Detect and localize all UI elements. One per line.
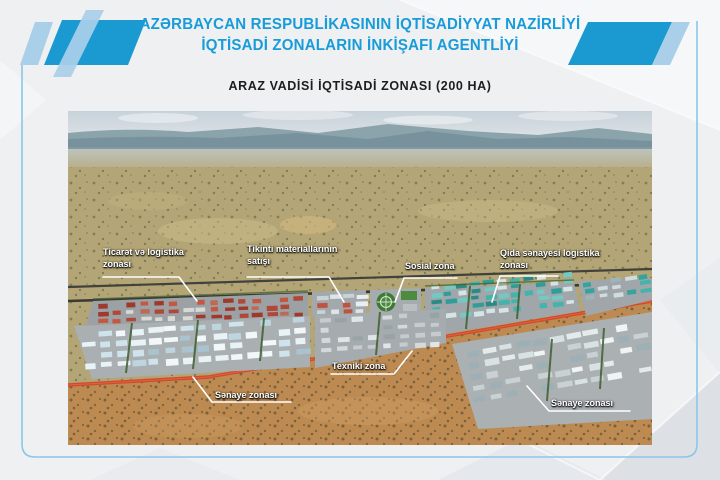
page-title: ARAZ VADİSİ İQTİSADİ ZONASI (200 HA)	[0, 79, 720, 93]
zone-label-construction-materials: Tikinti materiallarının satışı	[247, 244, 353, 267]
zone-label-industrial-right: Sənaye zonası	[551, 398, 613, 410]
label-leader-lines	[68, 111, 652, 445]
zone-label-social: Sosial zona	[405, 261, 455, 273]
header-line-2: İQTİSADİ ZONALARIN İNKİŞAFI AGENTLİYİ	[22, 35, 699, 56]
aerial-photo: Ticarət və logistika zonası Tikinti mate…	[68, 111, 652, 445]
zone-label-industrial-left: Sənaye zonası	[215, 390, 277, 402]
zone-label-trade-logistics: Ticarət və logistika zonası	[103, 247, 203, 270]
presentation-slide: AZƏRBAYCAN RESPUBLİKASININ İQTİSADİYYAT …	[0, 0, 720, 480]
zone-label-food-logistics: Qida sənayesi logistika zonası	[500, 248, 614, 271]
header: AZƏRBAYCAN RESPUBLİKASININ İQTİSADİYYAT …	[0, 14, 720, 56]
zone-label-technical: Texniki zona	[332, 361, 385, 373]
header-line-1: AZƏRBAYCAN RESPUBLİKASININ İQTİSADİYYAT …	[22, 14, 699, 35]
